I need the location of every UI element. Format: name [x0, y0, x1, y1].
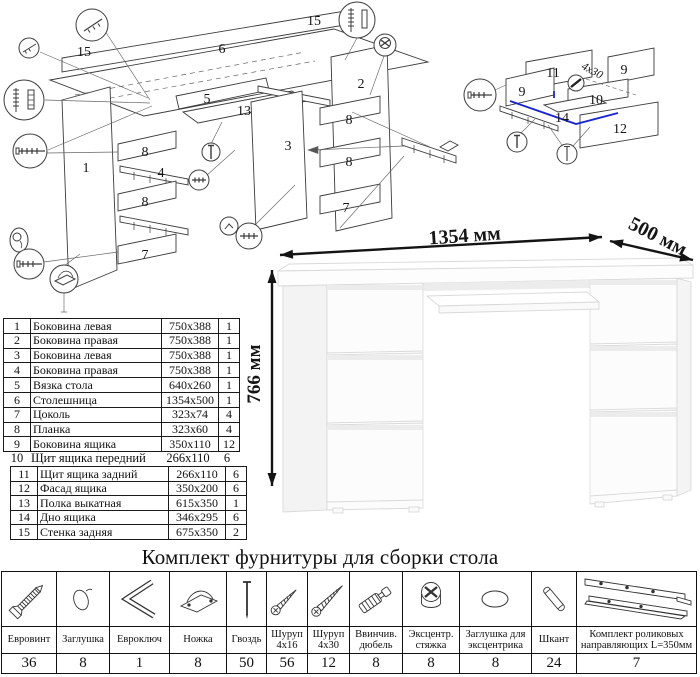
- table-row: 4Боковина правая750x3881: [4, 363, 240, 378]
- width-dimension-label: 1354 мм: [428, 223, 502, 250]
- hardware-kit-table: Евровинт 36 Заглушка 8: [1, 571, 697, 674]
- hardware-item-qty: 1: [110, 654, 169, 673]
- part-name: Боковина ящика: [31, 437, 162, 452]
- hardware-item-qty: 8: [170, 654, 226, 673]
- part-qty: 1: [219, 319, 240, 334]
- roller-slides-icon: [579, 574, 695, 624]
- part-label: 8: [142, 195, 149, 210]
- part-num: 10: [3, 451, 31, 466]
- part-name: Фасад ящика: [38, 481, 169, 496]
- hardware-item-label: Шкант: [532, 627, 576, 654]
- hardware-item-label: Шуруп 4x16: [267, 627, 307, 654]
- part-label: 15: [307, 14, 321, 29]
- part-label: 8: [346, 155, 353, 170]
- part-size: 675x350: [169, 525, 226, 540]
- hardware-item-label: Евроключ: [110, 627, 169, 654]
- table-row: 7Цоколь323x744: [4, 407, 240, 422]
- hex-key-icon: [114, 574, 166, 624]
- part-num: 14: [11, 510, 38, 525]
- part-label: 6: [219, 42, 226, 57]
- drawer-assembly-diagram: 9 11 9 10 14 12 4x30: [440, 35, 700, 230]
- part-name: Столешница: [31, 392, 162, 407]
- part-label: 5: [204, 92, 211, 107]
- part-label: 2: [358, 77, 365, 92]
- confirmat-screw-icon: [5, 574, 53, 624]
- part-label: 10: [589, 93, 603, 108]
- part-num: 8: [4, 422, 31, 437]
- part-name: Щит ящика передний: [31, 451, 159, 466]
- part-label: 7: [142, 248, 149, 263]
- part-qty: 4: [219, 407, 240, 422]
- parts-list-table-upper: 1Боковина левая750x3881 2Боковина правая…: [3, 318, 240, 452]
- part-qty: 1: [219, 333, 240, 348]
- part-num: 1: [4, 319, 31, 334]
- hardware-item-qty: 7: [577, 654, 696, 673]
- part-qty: 6: [226, 467, 247, 482]
- part-label: 3: [285, 139, 292, 154]
- hardware-item-qty: 50: [227, 654, 266, 673]
- part-label: 1: [83, 161, 90, 176]
- height-dimension-label: 766 мм: [244, 344, 265, 403]
- table-row: 8Планка323x604: [4, 422, 240, 437]
- part-qty: 4: [219, 422, 240, 437]
- part-name: Щит ящика задний: [38, 467, 169, 482]
- hardware-item: Комплект роликовых направляющих L=350мм …: [577, 572, 696, 673]
- part-label: 9: [519, 85, 526, 100]
- sleeve-icon: [28, 90, 34, 109]
- part-qty: 6: [217, 451, 237, 466]
- hardware-item: Евроключ 1: [110, 572, 170, 673]
- foot-icon: [173, 574, 223, 624]
- part-qty: 1: [219, 378, 240, 393]
- screw-in-dowel-icon: [352, 574, 400, 624]
- part-name: Дно ящика: [38, 510, 169, 525]
- sleeve-icon: [362, 10, 367, 28]
- hardware-item: Шкант 24: [532, 572, 577, 673]
- part-name: Боковина левая: [31, 319, 162, 334]
- hardware-item-label: Заглушка для эксцентрика: [460, 627, 531, 654]
- hardware-item-qty: 24: [532, 654, 576, 673]
- hardware-item-label: Заглушка: [57, 627, 109, 654]
- part-size: 323x60: [162, 422, 219, 437]
- part-size: 750x388: [162, 319, 219, 334]
- hardware-item-label: Эксцентр. стяжка: [403, 627, 459, 654]
- part-size: 750x388: [162, 363, 219, 378]
- part-num: 6: [4, 392, 31, 407]
- hardware-item-qty: 8: [57, 654, 109, 673]
- part-num: 7: [4, 407, 31, 422]
- table-row: 9Боковина ящика350x11012: [4, 437, 240, 452]
- hardware-item-qty: 56: [267, 654, 307, 673]
- hardware-item: Ножка 8: [170, 572, 227, 673]
- parts-list-table-lower: 11Щит ящика задний266x1106 12Фасад ящика…: [10, 466, 247, 540]
- part-label: 9: [621, 63, 628, 78]
- hardware-item-label: Ввинчив. дюбель: [350, 627, 402, 654]
- part-label: 8: [142, 145, 149, 160]
- cap-icon: [13, 233, 21, 241]
- part-label: 8: [346, 113, 353, 128]
- part-qty: 1: [219, 392, 240, 407]
- hardware-item: Гвоздь 50: [227, 572, 267, 673]
- part-size: 346x295: [169, 510, 226, 525]
- table-row: 13Полка выкатная615x3501: [11, 496, 247, 511]
- hardware-item-label: Шуруп 4x30: [308, 627, 349, 654]
- hardware-item-qty: 8: [350, 654, 402, 673]
- eccentric-cam-icon: [405, 574, 457, 624]
- part-size: 350x110: [162, 437, 219, 452]
- hardware-item-label: Гвоздь: [227, 627, 266, 654]
- part-num: 13: [11, 496, 38, 511]
- hardware-item: Заглушка 8: [57, 572, 110, 673]
- table-row: 2Боковина правая750x3881: [4, 333, 240, 348]
- hardware-item-label: Ножка: [170, 627, 226, 654]
- part-label: 12: [613, 122, 627, 137]
- depth-dimension-label: 500 мм: [625, 213, 690, 261]
- part-num: 12: [11, 481, 38, 496]
- table-row: 15Стенка задняя675x3502: [11, 525, 247, 540]
- part-qty: 6: [226, 510, 247, 525]
- part-num: 11: [11, 467, 38, 482]
- hardware-item: Шуруп 4x30 12: [308, 572, 350, 673]
- table-row: 14Дно ящика346x2956: [11, 510, 247, 525]
- part-label: 15: [77, 45, 91, 60]
- part-num: 9: [4, 437, 31, 452]
- table-row: 5Вязка стола640x2601: [4, 378, 240, 393]
- hardware-item-label: Евровинт: [2, 627, 56, 654]
- part-size: 640x260: [162, 378, 219, 393]
- part-qty: 1: [226, 496, 247, 511]
- part-size: 1354x500: [162, 392, 219, 407]
- nail-icon: [230, 574, 264, 624]
- part-qty: 1: [219, 348, 240, 363]
- hardware-item: Ввинчив. дюбель 8: [350, 572, 403, 673]
- desk-body: [278, 258, 693, 513]
- hardware-item: Эксцентр. стяжка 8: [403, 572, 460, 673]
- part-label: 4: [158, 166, 165, 181]
- part-size: 266x110: [169, 467, 226, 482]
- part-num: 5: [4, 378, 31, 393]
- cam-cap-icon: [464, 574, 528, 624]
- hardware-item-label: Комплект роликовых направляющих L=350мм: [577, 627, 696, 654]
- part-name: Стенка задняя: [38, 525, 169, 540]
- table-row: 3Боковина левая750x3881: [4, 348, 240, 363]
- wooden-dowel-icon: [534, 574, 574, 624]
- part-label: 13: [237, 104, 251, 119]
- part-label: 11: [546, 66, 559, 81]
- part-qty: 12: [219, 437, 240, 452]
- cap-icon: [61, 574, 105, 624]
- part-qty: 6: [226, 481, 247, 496]
- part-label: 14: [555, 111, 569, 126]
- screw-4x16-icon: [269, 574, 305, 624]
- part-name: Цоколь: [31, 407, 162, 422]
- hardware-item-qty: 8: [403, 654, 459, 673]
- desk-3d-view: 1354 мм 500 мм 766 мм: [245, 212, 700, 547]
- part-size: 750x388: [162, 348, 219, 363]
- part-qty: 1: [219, 363, 240, 378]
- hardware-item: Евровинт 36: [2, 572, 57, 673]
- parts-list-row-10: 10 Щит ящика передний 266x110 6: [3, 451, 237, 466]
- screw-4x30-icon: [310, 574, 348, 624]
- part-num: 15: [11, 525, 38, 540]
- part-name: Вязка стола: [31, 378, 162, 393]
- part-size: 615x350: [169, 496, 226, 511]
- part-name: Планка: [31, 422, 162, 437]
- hardware-kit-title: Комплект фурнитуры для сборки стола: [0, 545, 640, 570]
- hardware-item: Шуруп 4x16 56: [267, 572, 308, 673]
- part-size: 750x388: [162, 333, 219, 348]
- table-row: 12Фасад ящика350x2006: [11, 481, 247, 496]
- hardware-item-qty: 12: [308, 654, 349, 673]
- table-row: 1Боковина левая750x3881: [4, 319, 240, 334]
- part-name: Боковина правая: [31, 333, 162, 348]
- hardware-item-qty: 36: [2, 654, 56, 673]
- part-name: Полка выкатная: [38, 496, 169, 511]
- part-name: Боковина правая: [31, 363, 162, 378]
- part-qty: 2: [226, 525, 247, 540]
- part-num: 4: [4, 363, 31, 378]
- part-size: 350x200: [169, 481, 226, 496]
- assembly-instruction-sheet: 15 6 15 1 8 4 8 7 5 13 3 2 8 8 7: [0, 0, 700, 677]
- part-size: 266x110: [159, 451, 217, 466]
- hardware-item: Заглушка для эксцентрика 8: [460, 572, 532, 673]
- part-name: Боковина левая: [31, 348, 162, 363]
- hardware-item-qty: 8: [460, 654, 531, 673]
- part-num: 2: [4, 333, 31, 348]
- table-row: 11Щит ящика задний266x1106: [11, 467, 247, 482]
- table-row: 6Столешница1354x5001: [4, 392, 240, 407]
- part-num: 3: [4, 348, 31, 363]
- part-size: 323x74: [162, 407, 219, 422]
